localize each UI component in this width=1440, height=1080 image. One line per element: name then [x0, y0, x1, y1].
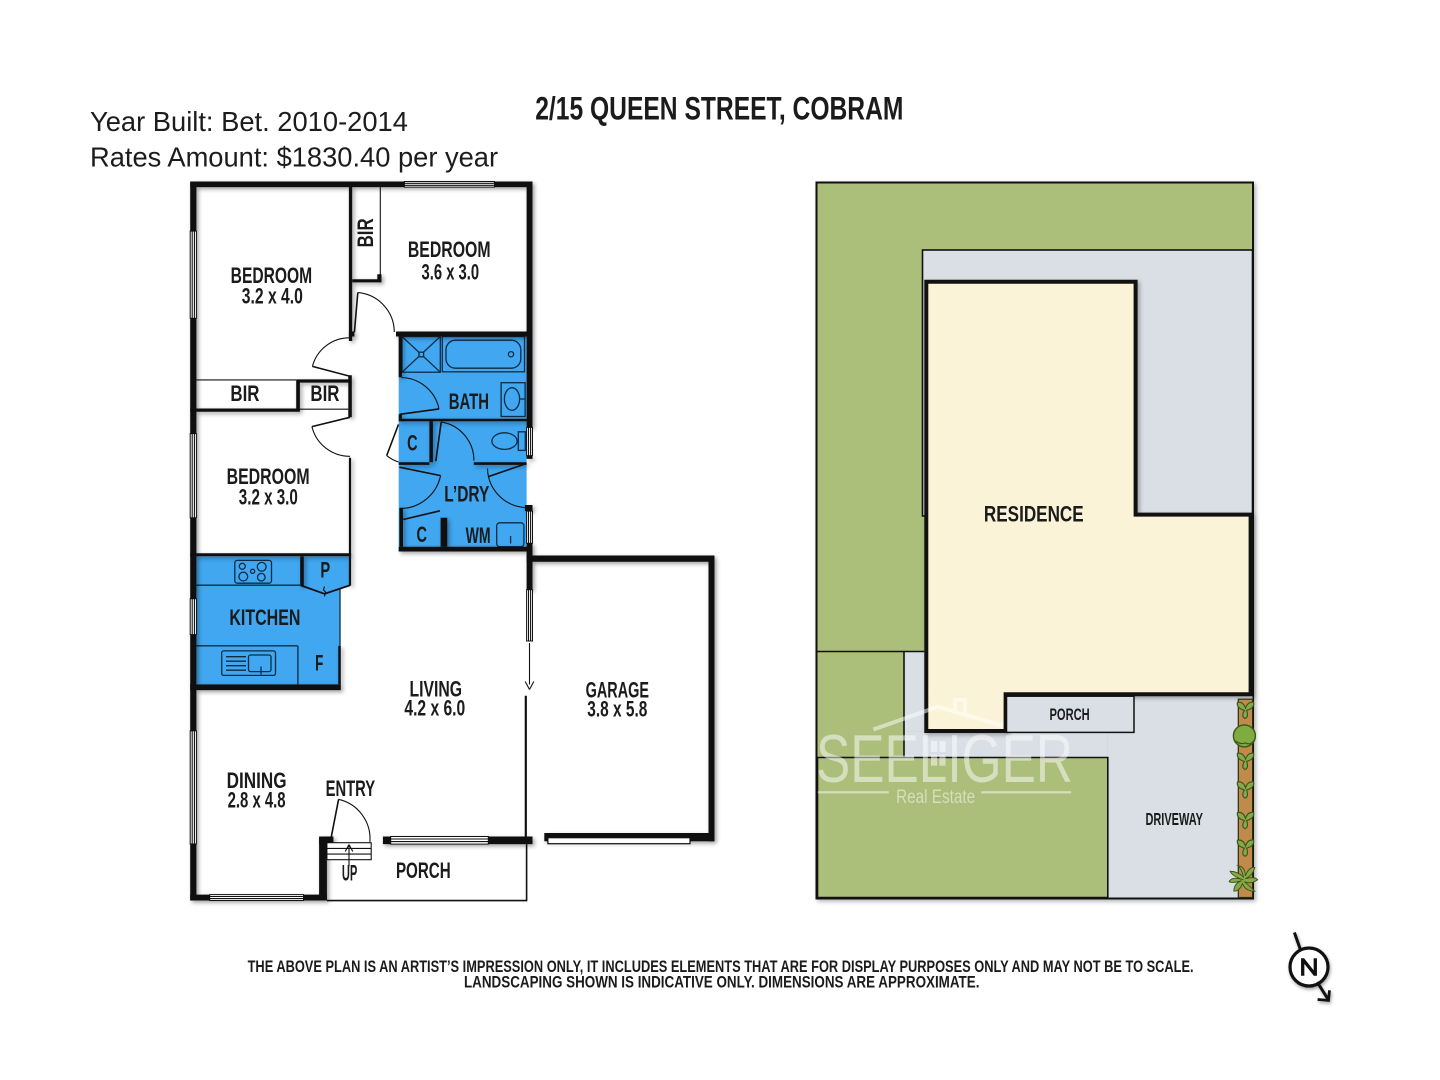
- svg-text:Rates Amount: $1830.40 per yea: Rates Amount: $1830.40 per year: [90, 141, 498, 172]
- svg-text:Year Built: Bet. 2010-2014: Year Built: Bet. 2010-2014: [90, 105, 408, 136]
- svg-text:Real Estate: Real Estate: [896, 787, 975, 808]
- svg-text:3.2 x 3.0: 3.2 x 3.0: [239, 485, 298, 509]
- svg-text:F: F: [315, 650, 323, 675]
- svg-text:3.8 x 5.8: 3.8 x 5.8: [587, 698, 647, 722]
- svg-text:P: P: [320, 559, 330, 584]
- svg-text:LANDSCAPING SHOWN IS INDICATIV: LANDSCAPING SHOWN IS INDICATIVE ONLY. DI…: [464, 973, 979, 992]
- svg-text:DRIVEWAY: DRIVEWAY: [1145, 811, 1203, 830]
- svg-text:BIR: BIR: [230, 382, 259, 407]
- svg-text:3.2 x 4.0: 3.2 x 4.0: [242, 285, 303, 309]
- svg-text:UP: UP: [342, 860, 358, 885]
- svg-text:KITCHEN: KITCHEN: [229, 605, 300, 630]
- svg-text:BATH: BATH: [449, 390, 489, 415]
- svg-text:BIR: BIR: [354, 218, 379, 247]
- svg-text:L’DRY: L’DRY: [444, 483, 489, 507]
- svg-text:BIR: BIR: [310, 382, 339, 407]
- svg-text:4.2 x 6.0: 4.2 x 6.0: [404, 697, 465, 721]
- svg-text:2.8 x 4.8: 2.8 x 4.8: [228, 788, 286, 813]
- svg-text:2/15 QUEEN STREET, COBRAM: 2/15 QUEEN STREET, COBRAM: [535, 92, 903, 128]
- svg-text:RESIDENCE: RESIDENCE: [984, 503, 1084, 528]
- svg-text:WM: WM: [466, 522, 491, 547]
- svg-text:C: C: [407, 430, 418, 455]
- svg-text:ENTRY: ENTRY: [326, 777, 376, 802]
- svg-text:C: C: [416, 522, 427, 547]
- svg-text:PORCH: PORCH: [396, 859, 451, 884]
- svg-text:3.6 x 3.0: 3.6 x 3.0: [422, 260, 479, 285]
